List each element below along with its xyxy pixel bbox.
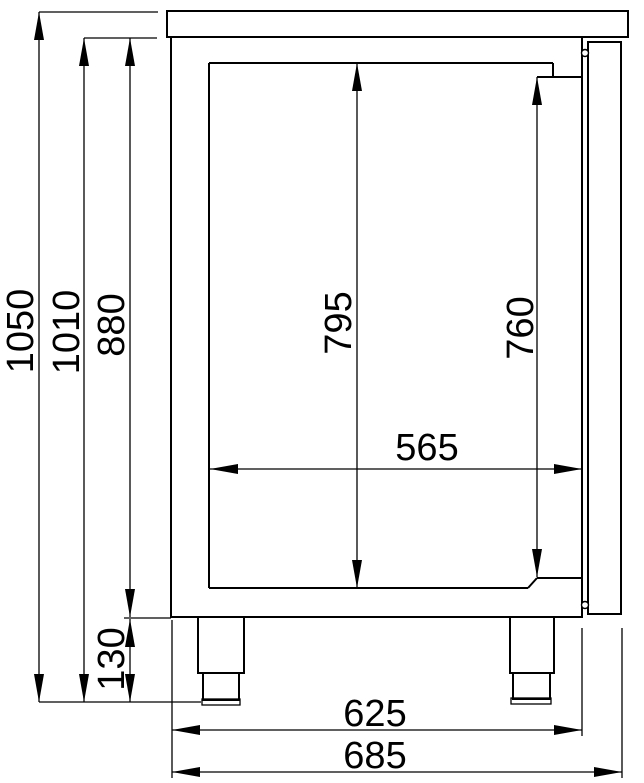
technical-drawing-canvas: 1050 1010 880 130 795 760 <box>0 0 644 783</box>
dim-label-inner-height: 760 <box>500 296 542 359</box>
dim-label-body-depth: 625 <box>343 693 406 735</box>
dim-body-depth: 625 <box>172 628 582 736</box>
dim-label-inner-depth: 565 <box>395 427 458 469</box>
right-leg-upper <box>510 617 554 673</box>
hinge-top-icon <box>582 50 589 57</box>
dim-body-height: 880 <box>91 38 135 617</box>
arrowhead-up-icon <box>352 63 362 91</box>
arrowhead-up-icon <box>79 38 89 66</box>
arrowhead-up-icon <box>34 12 44 40</box>
dim-inner-depth: 565 <box>210 427 582 474</box>
arrowhead-down-icon <box>125 589 135 617</box>
arrowhead-up-icon <box>125 38 135 66</box>
arrowhead-down-icon <box>34 674 44 702</box>
dim-door-opening-height: 795 <box>318 63 362 588</box>
right-leg <box>510 617 554 704</box>
dim-label-body-height: 880 <box>91 293 133 356</box>
technical-drawing-page: 1050 1010 880 130 795 760 <box>0 0 644 783</box>
dim-inner-height: 760 <box>500 77 542 577</box>
worktop-outline <box>167 11 628 37</box>
dim-leg-height: 130 <box>91 618 171 702</box>
arrowhead-down-icon <box>79 674 89 702</box>
dim-label-overall-depth: 685 <box>343 735 406 777</box>
cabinet-structure <box>167 11 628 705</box>
arrowhead-left-icon <box>172 725 200 735</box>
dim-label-overall-height: 1050 <box>0 289 42 374</box>
left-leg-foot <box>203 673 239 700</box>
arrowhead-right-icon <box>594 767 622 777</box>
arrowhead-up-icon <box>532 77 542 105</box>
door-panel-outline <box>588 42 621 614</box>
left-leg-upper <box>198 617 244 673</box>
dim-label-leg-height: 130 <box>91 627 133 690</box>
hinge-bottom-icon <box>582 602 589 609</box>
left-leg <box>198 617 244 705</box>
arrowhead-down-icon <box>532 549 542 577</box>
arrowhead-right-icon <box>554 725 582 735</box>
arrowhead-left-icon <box>210 464 238 474</box>
right-leg-foot <box>513 673 550 699</box>
dim-label-door-opening-height: 795 <box>318 291 360 354</box>
arrowhead-left-icon <box>172 767 200 777</box>
chamber-bottom-chamfer <box>528 578 537 588</box>
dim-label-height-excl-worktop: 1010 <box>46 290 88 375</box>
dim-height-excl-worktop: 1010 <box>46 38 157 702</box>
arrowhead-down-icon <box>352 560 362 588</box>
arrowhead-right-icon <box>554 464 582 474</box>
